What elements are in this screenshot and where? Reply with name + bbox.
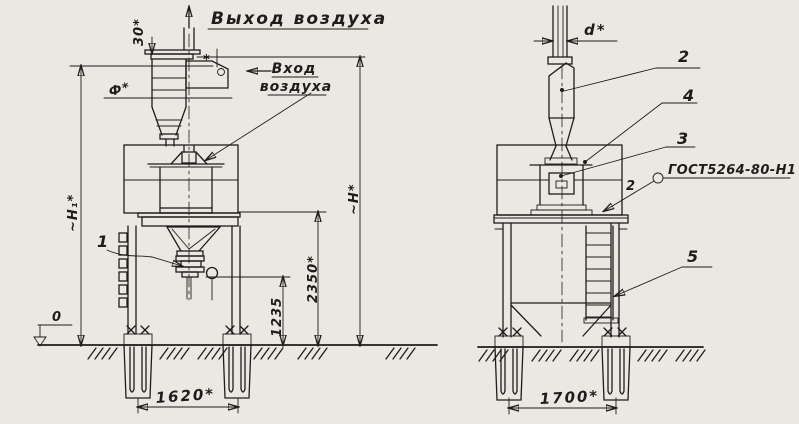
air-outlet-annotation: Выход воздуха xyxy=(189,7,387,29)
support-legs-side xyxy=(495,223,627,337)
chamber-front xyxy=(124,93,311,213)
ladder-side xyxy=(584,226,618,323)
dim-1620-label: 1620* xyxy=(155,385,216,407)
foundation-pile xyxy=(124,345,152,398)
dim-2350: 2350* xyxy=(306,212,321,345)
chamber-box-front xyxy=(124,145,238,213)
cyclone-cone xyxy=(152,107,162,135)
platform-side xyxy=(494,215,628,223)
callout-4-label: 4 xyxy=(682,86,694,105)
dim-30: 30* xyxy=(132,18,152,53)
weld-note: 2 ГОСТ5264-80-Н1 xyxy=(604,163,796,211)
dim-2350-label: 2350* xyxy=(306,255,321,303)
callout-5: 5 xyxy=(615,247,712,296)
platform-front xyxy=(138,208,326,226)
diameter-label: Ф* xyxy=(107,80,132,100)
foundation-pile xyxy=(223,345,251,398)
air-outlet-label: Выход воздуха xyxy=(211,9,387,29)
chamber-side xyxy=(497,145,622,215)
callout-3-label: 3 xyxy=(677,129,688,148)
pipe-flange-side xyxy=(548,57,572,64)
dim-1235: 1235 xyxy=(270,277,285,345)
air-inlet-label-1: Вход xyxy=(272,61,317,77)
dim-height-h1: ~H₁* xyxy=(66,66,213,345)
foundation-pile xyxy=(602,347,630,400)
inlet-star-label: * xyxy=(203,53,211,68)
callout-1: 1 xyxy=(97,232,182,266)
callout-5-label: 5 xyxy=(687,247,698,266)
platform-beam-side xyxy=(494,215,628,223)
dim-d: d* xyxy=(534,21,617,41)
air-inlet-annotation: Вход воздуха xyxy=(248,61,332,95)
weld-spec-label: ГОСТ5264-80-Н1 xyxy=(668,163,796,178)
callout-2: 2 xyxy=(564,47,700,91)
dim-30-label: 30* xyxy=(132,18,147,46)
hopper-discharge-front xyxy=(167,227,290,300)
unloader-flange xyxy=(176,256,204,261)
dim-1700: 1700* xyxy=(509,387,616,414)
weld-qty-label: 2 xyxy=(626,179,635,194)
ground-side xyxy=(478,347,705,361)
dim-1700-label: 1700* xyxy=(539,387,599,408)
foundation-pile xyxy=(495,347,523,400)
datum-marker: 0 xyxy=(34,310,72,346)
callout-4: 4 xyxy=(583,86,697,164)
cyclone-installation-drawing: 0 ~H₁* ~H* Выход воздуха Вход воздуха 30… xyxy=(0,0,799,424)
support-legs-front xyxy=(119,226,240,334)
datum-level-label: 0 xyxy=(52,310,62,325)
h-dimension-label: ~H* xyxy=(347,183,362,215)
weld-symbol-circle xyxy=(653,173,663,183)
flange-leader xyxy=(206,93,311,160)
inlet-bolt-hole xyxy=(218,69,225,76)
air-inlet-label-2: воздуха xyxy=(260,79,333,95)
blueprint-canvas: 0 ~H₁* ~H* Выход воздуха Вход воздуха 30… xyxy=(0,0,799,424)
h1-dimension-label: ~H₁* xyxy=(66,194,81,232)
callout-2-label: 2 xyxy=(678,47,689,66)
dim-1235-label: 1235 xyxy=(270,297,285,337)
ground-front xyxy=(38,345,437,359)
platform-beam-front xyxy=(142,217,238,226)
callout-1-label: 1 xyxy=(97,232,108,251)
dim-d-label: d* xyxy=(584,21,607,39)
dim-1620: 1620* xyxy=(138,385,238,413)
